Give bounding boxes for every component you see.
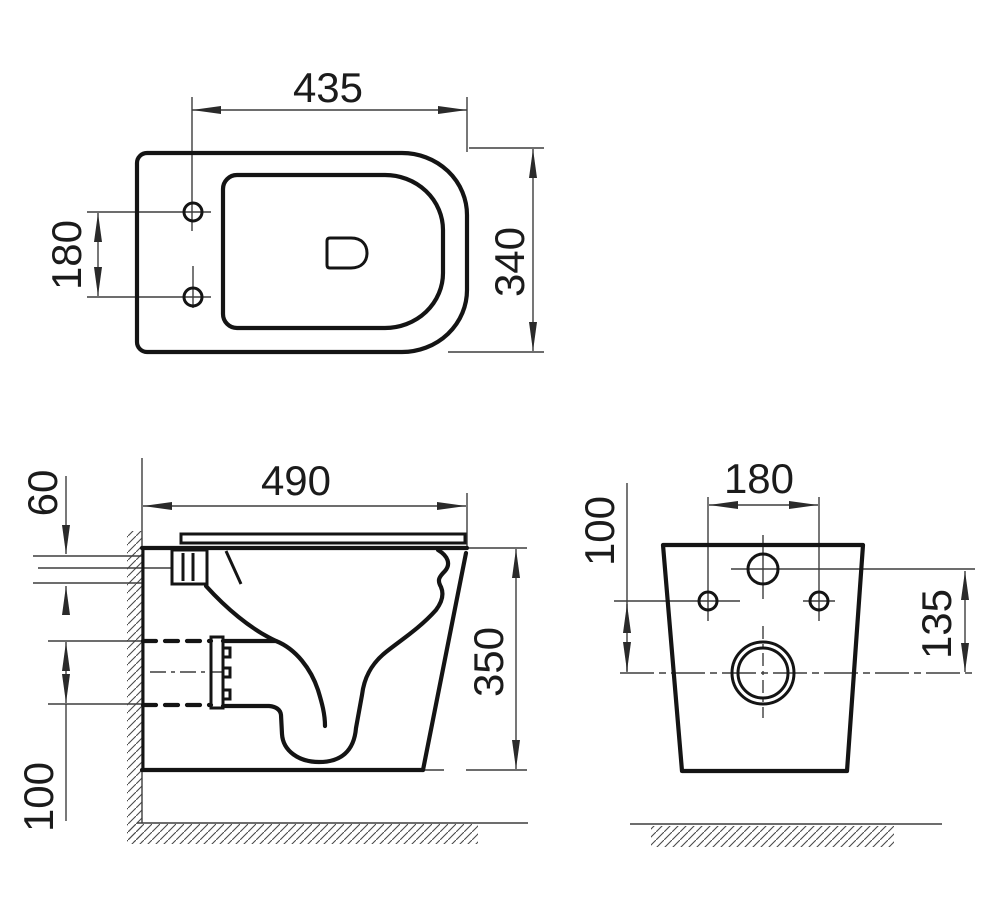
dim-side-depth-label: 490 xyxy=(261,457,331,504)
side-view: 490 60 100 350 xyxy=(15,457,528,844)
side-view-toilet-body xyxy=(142,534,467,770)
seat-lid xyxy=(181,534,465,543)
dim-side-drain: 100 xyxy=(15,642,66,832)
dim-rear-hole-to-outlet-label: 100 xyxy=(576,496,623,566)
floor-hatch-side xyxy=(127,824,478,844)
top-view-extension-lines xyxy=(87,97,544,352)
dim-side-drain-label: 100 xyxy=(15,762,62,832)
dim-top-hole-spacing-label: 180 xyxy=(43,220,90,290)
dim-rear-inlet-to-outlet-label: 135 xyxy=(913,589,960,659)
dim-side-depth: 490 xyxy=(143,457,466,506)
dim-side-height-label: 350 xyxy=(465,627,512,697)
dim-side-top-offset-label: 60 xyxy=(19,470,66,517)
rear-view: 180 100 135 xyxy=(576,455,975,847)
dim-rear-inlet-to-outlet: 135 xyxy=(913,571,965,672)
drain-flange-tooth xyxy=(223,668,230,677)
dim-top-overall-depth: 340 xyxy=(486,149,533,351)
inlet-box xyxy=(172,550,207,584)
technical-drawing-page: 435 340 180 xyxy=(0,0,1000,915)
dim-top-hole-spacing: 180 xyxy=(43,213,98,296)
dim-top-width-label: 435 xyxy=(293,64,363,111)
top-view-flush-button xyxy=(327,238,367,268)
body-front-edge xyxy=(423,553,466,770)
dim-side-top-offset: 60 xyxy=(19,470,66,613)
top-view: 435 340 180 xyxy=(43,64,544,352)
wall-hatch xyxy=(127,531,142,842)
bowl-interior-outline xyxy=(223,550,448,762)
dim-top-depth-label: 340 xyxy=(486,227,533,297)
drain-flange-tooth xyxy=(223,690,230,699)
dim-rear-hole-to-outlet: 100 xyxy=(576,483,627,672)
drain-flange-tooth xyxy=(223,648,230,657)
dim-rear-hole-spacing: 180 xyxy=(709,455,818,505)
top-view-seat-opening xyxy=(223,175,443,328)
dim-top-overall-width: 435 xyxy=(192,64,467,111)
toilet-dimension-drawing: 435 340 180 xyxy=(0,0,1000,915)
dim-rear-hole-spacing-label: 180 xyxy=(724,455,794,502)
dim-side-height: 350 xyxy=(465,549,516,769)
trap-weir-outline xyxy=(223,641,325,726)
seat-hinge xyxy=(226,551,241,584)
floor-hatch-rear xyxy=(651,826,894,847)
bowl-back-exterior xyxy=(206,586,276,641)
